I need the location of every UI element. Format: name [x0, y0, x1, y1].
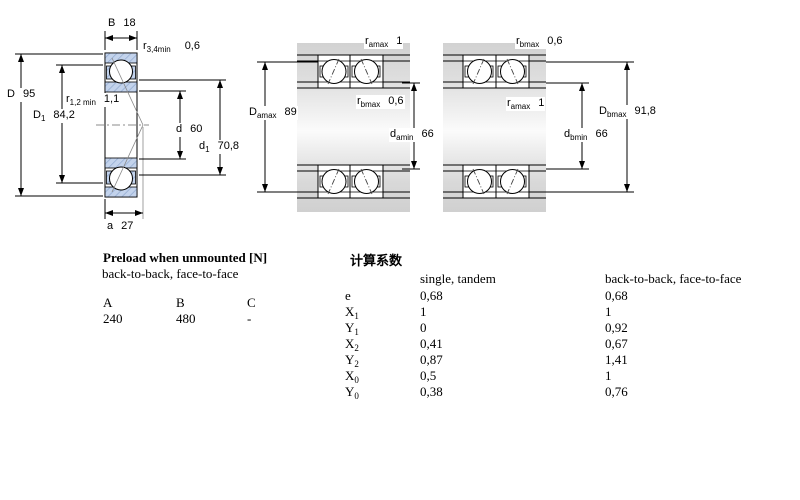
- dim-fillet-r34: r3,4min0,6: [142, 40, 201, 54]
- factors-table-title: 计算系数: [350, 250, 402, 269]
- bearing-unit: [350, 55, 383, 88]
- ball: [110, 167, 133, 190]
- factor-row-Y0: Y0 0,380,76: [0, 384, 800, 400]
- factor-row-X2: X2 0,410,67: [0, 336, 800, 352]
- bearing-unit: [496, 55, 529, 88]
- dim-rbmax-face-to-face: rbmax0,6: [515, 35, 564, 49]
- dim-fillet-r12: r1,2 min1,1: [65, 93, 120, 107]
- factor-row-e: e 0,680,68: [0, 288, 800, 304]
- ball: [110, 60, 133, 83]
- bearing-unit: [318, 55, 350, 88]
- factors-col-header-single-tandem: single, tandem: [420, 271, 496, 287]
- dim-Damax: Damax89: [248, 106, 298, 120]
- dim-pressure-center-a: a27: [106, 220, 134, 234]
- dim-shoulder-diameter-d1: d170,8: [198, 140, 240, 154]
- dim-Dbmax: Dbmax91,8: [598, 105, 657, 119]
- dim-outer-diameter-D: D95: [6, 88, 36, 102]
- dim-ramax-face-to-face: ramax1: [506, 97, 545, 111]
- preload-table-subtitle: back-to-back, face-to-face: [102, 266, 238, 282]
- dim-width-B: B18: [107, 17, 137, 31]
- bearing-unit: [463, 55, 496, 88]
- factor-row-X0: X0 0,51: [0, 368, 800, 384]
- factor-row-Y2: Y2 0,871,41: [0, 352, 800, 368]
- bearing-unit: [463, 165, 496, 198]
- bearing-specification-page: B18 r3,4min0,6 D95 D184,2 r1,2 min1,1 d6…: [0, 0, 800, 500]
- dim-dbmin: dbmin66: [563, 128, 609, 142]
- bearing-unit: [318, 165, 350, 198]
- dim-bore-diameter-d: d60: [175, 123, 203, 137]
- bearing-unit: [496, 165, 529, 198]
- ball: [468, 60, 492, 84]
- ball: [468, 170, 492, 194]
- factor-row-Y1: Y1 00,92: [0, 320, 800, 336]
- dim-shoulder-diameter-D1: D184,2: [32, 109, 76, 123]
- ball: [322, 60, 346, 84]
- ball: [322, 170, 346, 194]
- dim-damin: damin66: [389, 128, 435, 142]
- factors-col-header-back-to-back: back-to-back, face-to-face: [605, 271, 741, 287]
- bearing-unit: [350, 165, 383, 198]
- dim-ramax-back-to-back: ramax1: [364, 35, 403, 49]
- factor-row-X1: X1 11: [0, 304, 800, 320]
- dim-rbmax-back-to-back: rbmax0,6: [356, 95, 405, 109]
- preload-table-title: Preload when unmounted [N]: [103, 250, 267, 266]
